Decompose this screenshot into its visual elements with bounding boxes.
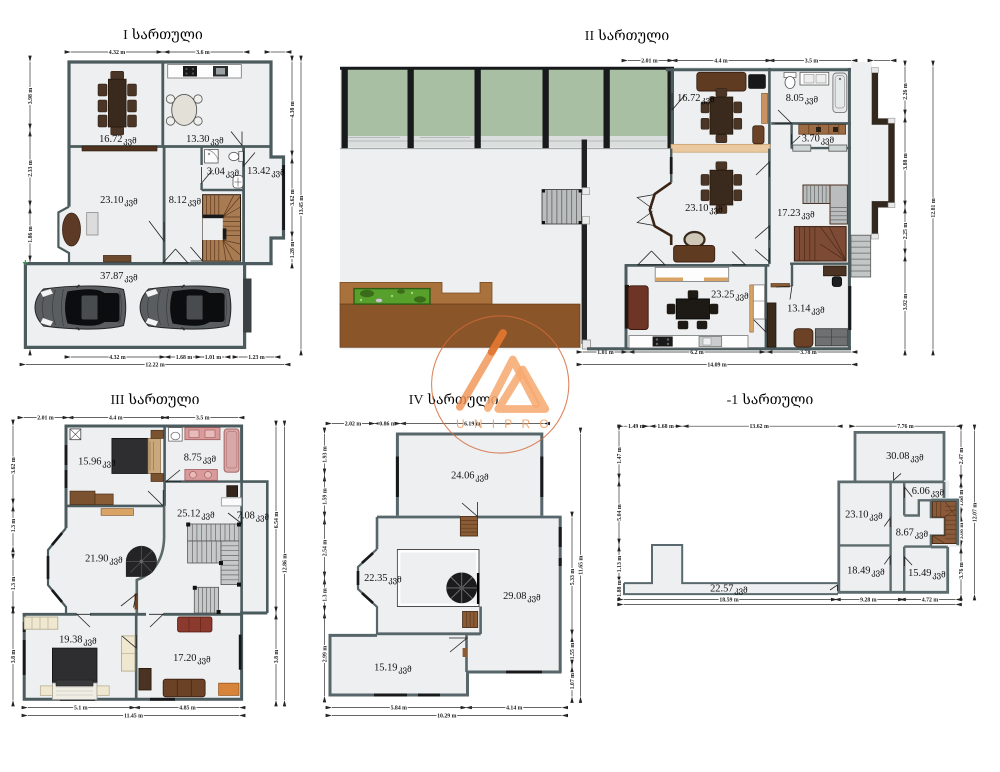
svg-text:3.8 m: 3.8 m [274, 650, 280, 664]
svg-text:2.02 m: 2.02 m [345, 421, 362, 427]
svg-text:4.85 m: 4.85 m [179, 706, 196, 712]
svg-text:15.96: 15.96 [78, 457, 101, 468]
svg-text:4.14 m: 4.14 m [506, 706, 523, 712]
svg-text:4.32 m: 4.32 m [109, 355, 126, 361]
svg-text:23.10: 23.10 [845, 510, 868, 521]
svg-text:1.3 m: 1.3 m [322, 588, 328, 602]
svg-text:23.10: 23.10 [685, 203, 708, 214]
svg-text:III: III [111, 393, 125, 408]
svg-text:23.25: 23.25 [711, 290, 734, 301]
svg-text:2.01 m: 2.01 m [641, 58, 658, 64]
svg-text:2.01 m: 2.01 m [37, 416, 54, 422]
svg-text:UNIPRO: UNIPRO [456, 417, 558, 431]
svg-text:13.42: 13.42 [247, 166, 270, 177]
svg-text:1.28 m: 1.28 m [290, 242, 296, 259]
svg-text:12.81 m: 12.81 m [931, 198, 937, 217]
svg-text:21.90: 21.90 [85, 554, 108, 565]
svg-text:8.75: 8.75 [184, 453, 202, 464]
svg-text:5.33 m: 5.33 m [570, 569, 576, 586]
svg-text:2.47 m: 2.47 m [959, 448, 965, 465]
svg-text:4.38 m: 4.38 m [290, 101, 296, 118]
svg-text:3.8 m: 3.8 m [11, 650, 17, 664]
svg-text:2.26 m: 2.26 m [903, 83, 909, 100]
svg-text:22.35: 22.35 [364, 573, 387, 584]
svg-text:3.62 m: 3.62 m [290, 189, 296, 206]
svg-text:11.45 m: 11.45 m [124, 713, 143, 719]
svg-text:24.06: 24.06 [451, 471, 474, 482]
svg-text:15.49: 15.49 [908, 568, 931, 579]
svg-text:7.08: 7.08 [237, 511, 255, 522]
svg-text:5.84 m: 5.84 m [391, 706, 408, 712]
svg-text:6.54 m: 6.54 m [274, 512, 280, 529]
svg-text:1.07 m: 1.07 m [570, 673, 576, 690]
svg-text:1.68 m: 1.68 m [176, 355, 193, 361]
svg-text:5.04 m: 5.04 m [617, 504, 623, 521]
svg-text:IV: IV [409, 393, 424, 408]
svg-text:30.08: 30.08 [886, 451, 909, 462]
svg-text:1.01 m: 1.01 m [597, 350, 614, 356]
svg-text:1.55 m: 1.55 m [570, 643, 576, 660]
svg-text:3.76 m: 3.76 m [959, 562, 965, 579]
svg-text:3.70: 3.70 [802, 134, 820, 145]
svg-text:4.72 m: 4.72 m [922, 597, 939, 603]
svg-text:6.06: 6.06 [912, 486, 930, 497]
svg-text:4.4 m: 4.4 m [109, 416, 123, 422]
svg-text:4.32 m: 4.32 m [109, 50, 126, 56]
svg-text:8.05: 8.05 [786, 93, 804, 104]
svg-text:1.47 m: 1.47 m [617, 447, 623, 464]
svg-text:1.23 m: 1.23 m [248, 355, 265, 361]
svg-text:II: II [585, 29, 595, 44]
svg-text:15.19: 15.19 [374, 663, 397, 674]
svg-text:5.1 m: 5.1 m [74, 706, 88, 712]
svg-text:1.13 m: 1.13 m [617, 556, 623, 573]
svg-text:3.78 m: 3.78 m [800, 350, 817, 356]
svg-text:2.33 m: 2.33 m [28, 160, 34, 177]
svg-text:14.09 m: 14.09 m [707, 362, 726, 368]
svg-text:2.54 m: 2.54 m [322, 540, 328, 557]
svg-text:3.6 m: 3.6 m [196, 50, 210, 56]
svg-text:6.2 m: 6.2 m [690, 350, 704, 356]
svg-text:7.76 m: 7.76 m [897, 424, 914, 430]
svg-text:16.72: 16.72 [677, 93, 700, 104]
svg-text:3.5 m: 3.5 m [805, 58, 819, 64]
svg-text:18.59 m: 18.59 m [719, 597, 738, 603]
svg-text:3.92 m: 3.92 m [903, 294, 909, 311]
svg-text:17.23: 17.23 [777, 208, 800, 219]
svg-text:22.57: 22.57 [710, 584, 733, 595]
svg-text:12.07 m: 12.07 m [972, 503, 978, 522]
svg-text:3.62 m: 3.62 m [11, 457, 17, 474]
svg-text:1.86 m: 1.86 m [28, 226, 34, 243]
svg-text:1.3 m: 1.3 m [11, 577, 17, 591]
svg-text:19.38: 19.38 [59, 635, 82, 646]
svg-text:3.04: 3.04 [207, 167, 226, 178]
svg-text:I: I [123, 28, 128, 43]
svg-text:1.93 m: 1.93 m [322, 446, 328, 463]
svg-text:18.49: 18.49 [847, 566, 870, 577]
svg-text:25.12: 25.12 [177, 509, 200, 520]
svg-text:37.87: 37.87 [100, 271, 123, 282]
svg-text:9.28 m: 9.28 m [860, 597, 877, 603]
svg-text:17.20: 17.20 [173, 653, 196, 664]
svg-text:2.25 m: 2.25 m [903, 223, 909, 240]
svg-text:8.12: 8.12 [169, 195, 187, 206]
svg-text:11.65 m: 11.65 m [578, 556, 584, 575]
svg-text:12.22 m: 12.22 m [145, 362, 164, 368]
svg-text:1.01 m: 1.01 m [205, 355, 222, 361]
svg-text:10.29 m: 10.29 m [437, 713, 456, 719]
svg-text:1.59 m: 1.59 m [322, 488, 328, 505]
svg-text:23.10: 23.10 [100, 195, 123, 206]
svg-text:1.68 m: 1.68 m [657, 424, 674, 430]
svg-text:13.62 m: 13.62 m [750, 424, 769, 430]
svg-text:13.30: 13.30 [186, 134, 209, 145]
svg-text:8.67: 8.67 [896, 528, 914, 539]
svg-text:12.86 m: 12.86 m [282, 554, 288, 573]
svg-text:3.5 m: 3.5 m [196, 416, 210, 422]
svg-text:13.45 m: 13.45 m [299, 196, 305, 215]
svg-text:3.98 m: 3.98 m [28, 88, 34, 105]
svg-text:4.4 m: 4.4 m [714, 58, 728, 64]
svg-text:0.86 m: 0.86 m [379, 421, 396, 427]
svg-text:2.99 m: 2.99 m [322, 646, 328, 663]
svg-text:-1: -1 [727, 393, 739, 408]
svg-text:29.08: 29.08 [503, 591, 526, 602]
svg-text:3.88 m: 3.88 m [903, 153, 909, 170]
svg-text:1.88 m: 1.88 m [617, 580, 623, 597]
svg-text:16.72: 16.72 [99, 134, 122, 145]
svg-text:13.14: 13.14 [787, 304, 811, 315]
svg-text:1.49 m: 1.49 m [628, 424, 645, 430]
svg-text:1.3 m: 1.3 m [11, 519, 17, 533]
